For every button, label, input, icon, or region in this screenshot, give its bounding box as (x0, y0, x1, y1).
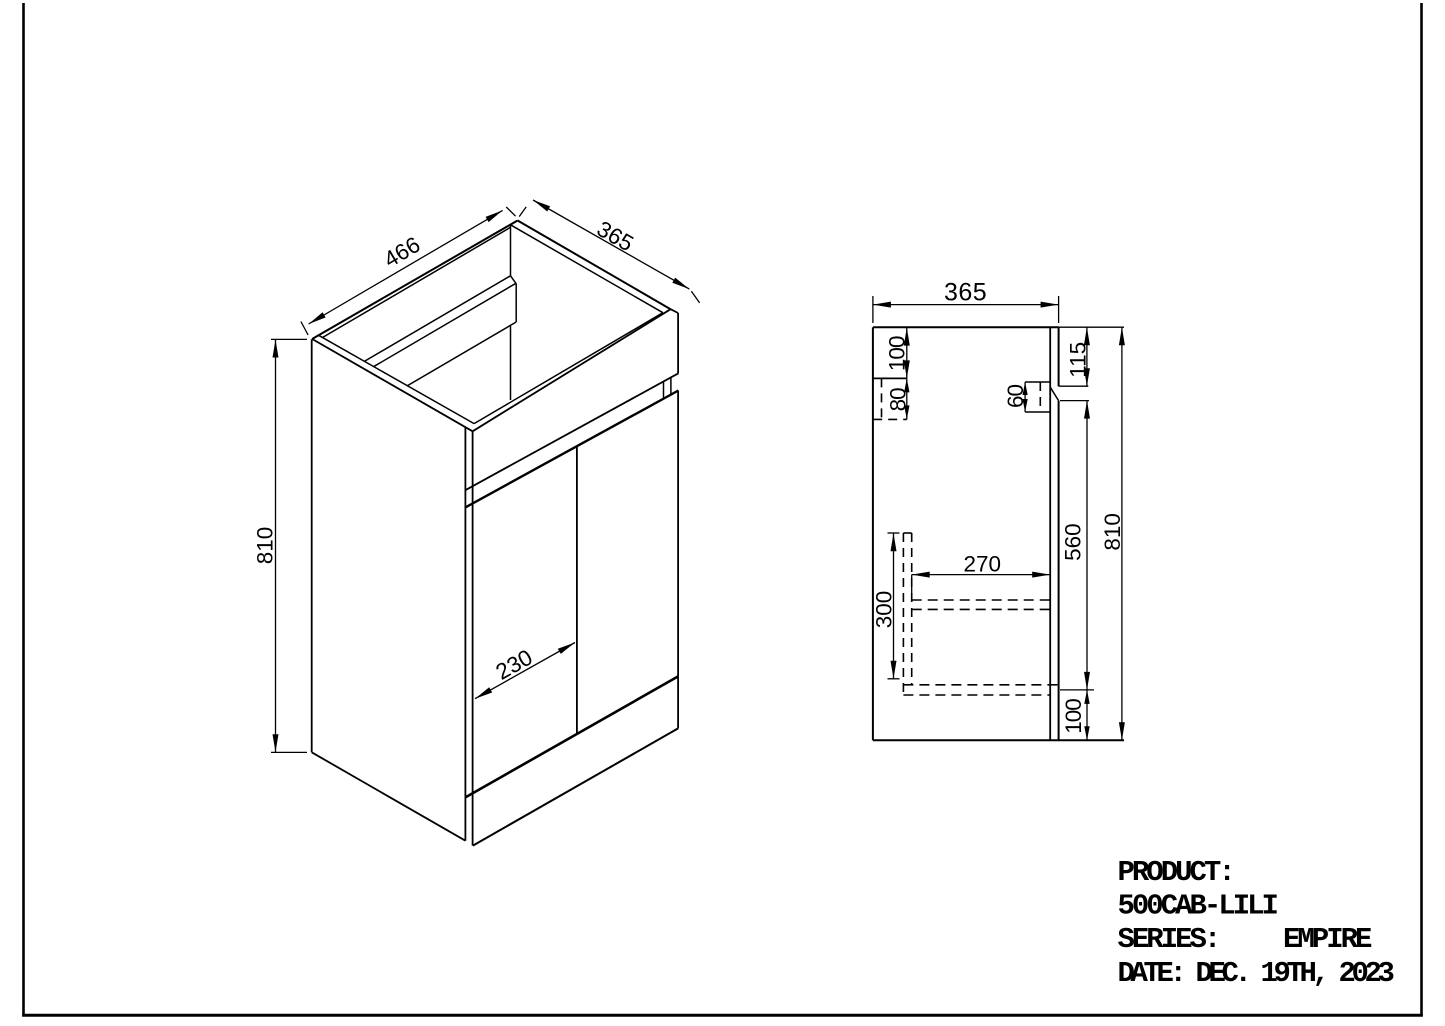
svg-text:500CAB-LILI: 500CAB-LILI (1118, 889, 1278, 922)
svg-text:EMPIRE: EMPIRE (1283, 923, 1372, 956)
svg-text:SERIES:: SERIES: (1118, 923, 1219, 956)
svg-text:100: 100 (1061, 699, 1086, 734)
svg-text:300: 300 (872, 591, 897, 629)
svg-text:PRODUCT:: PRODUCT: (1118, 856, 1233, 889)
svg-text:60: 60 (1003, 385, 1028, 409)
svg-text:80: 80 (885, 388, 910, 412)
svg-text:365: 365 (944, 279, 987, 307)
svg-text:DATE: DEC. 19TH, 2023: DATE: DEC. 19TH, 2023 (1118, 957, 1394, 990)
svg-text:560: 560 (1061, 523, 1086, 561)
svg-text:115: 115 (1065, 342, 1090, 378)
svg-text:810: 810 (252, 527, 277, 565)
svg-text:100: 100 (884, 336, 909, 371)
svg-text:810: 810 (1100, 513, 1125, 551)
svg-text:270: 270 (964, 551, 1002, 576)
